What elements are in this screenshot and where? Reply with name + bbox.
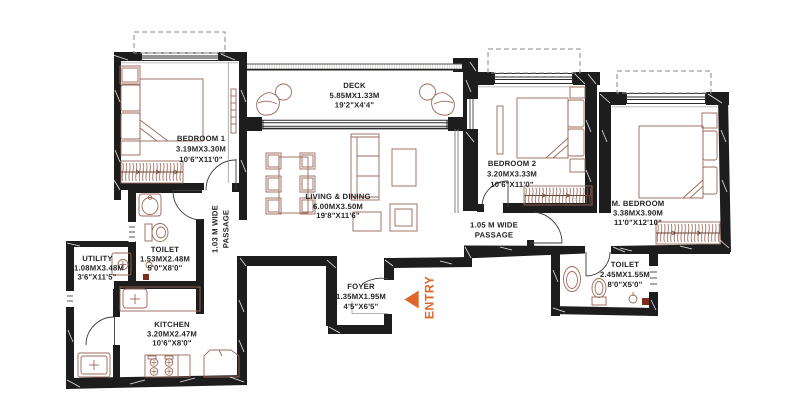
svg-text:1.03 M WIDE: 1.03 M WIDE	[211, 205, 220, 253]
svg-text:2.45MX1.55M: 2.45MX1.55M	[600, 270, 650, 279]
svg-text:UTILITY: UTILITY	[82, 254, 112, 263]
svg-text:BEDROOM 1: BEDROOM 1	[177, 134, 226, 143]
svg-text:3.19MX3.30M: 3.19MX3.30M	[176, 145, 226, 154]
svg-text:4'5"X6'5": 4'5"X6'5"	[344, 302, 379, 311]
svg-text:FOYER: FOYER	[347, 282, 375, 291]
svg-text:3'6"X11'5": 3'6"X11'5"	[77, 273, 116, 282]
svg-text:KITCHEN: KITCHEN	[154, 320, 190, 329]
svg-text:6.00MX3.50M: 6.00MX3.50M	[313, 202, 363, 211]
svg-text:3.20MX2.47M: 3.20MX2.47M	[147, 330, 197, 339]
svg-text:5.85MX1.33M: 5.85MX1.33M	[329, 91, 379, 100]
svg-text:PASSAGE: PASSAGE	[475, 231, 513, 240]
svg-text:1.08MX3.48M: 1.08MX3.48M	[74, 264, 124, 273]
svg-text:10'6"X11'0": 10'6"X11'0"	[490, 180, 534, 189]
svg-text:PASSAGE: PASSAGE	[222, 210, 231, 248]
svg-text:19'8"X11'6": 19'8"X11'6"	[316, 211, 360, 220]
svg-text:8'0"X5'0": 8'0"X5'0"	[608, 280, 643, 289]
svg-text:BEDROOM 2: BEDROOM 2	[488, 159, 536, 168]
svg-text:M. BEDROOM: M. BEDROOM	[612, 199, 665, 208]
svg-text:1.53MX2.48M: 1.53MX2.48M	[140, 255, 190, 264]
svg-text:1.35MX1.95M: 1.35MX1.95M	[336, 292, 386, 301]
svg-text:10'6"X11'0": 10'6"X11'0"	[179, 155, 223, 164]
svg-text:11'0"X12'10": 11'0"X12'10"	[614, 218, 662, 227]
svg-text:19'2"X4'4": 19'2"X4'4"	[335, 101, 375, 110]
svg-text:LIVING & DINING: LIVING & DINING	[305, 192, 370, 201]
svg-text:1.05 M WIDE: 1.05 M WIDE	[470, 221, 518, 230]
svg-text:TOILET: TOILET	[151, 245, 179, 254]
svg-text:ENTRY: ENTRY	[423, 275, 437, 319]
svg-text:TOILET: TOILET	[611, 260, 639, 269]
svg-text:DECK: DECK	[343, 81, 366, 90]
svg-text:3.38MX3.90M: 3.38MX3.90M	[613, 209, 663, 218]
svg-text:10'6"X8'0": 10'6"X8'0"	[152, 339, 192, 348]
svg-text:3.20MX3.33M: 3.20MX3.33M	[487, 170, 537, 179]
svg-text:5'0"X8'0": 5'0"X8'0"	[148, 264, 183, 273]
